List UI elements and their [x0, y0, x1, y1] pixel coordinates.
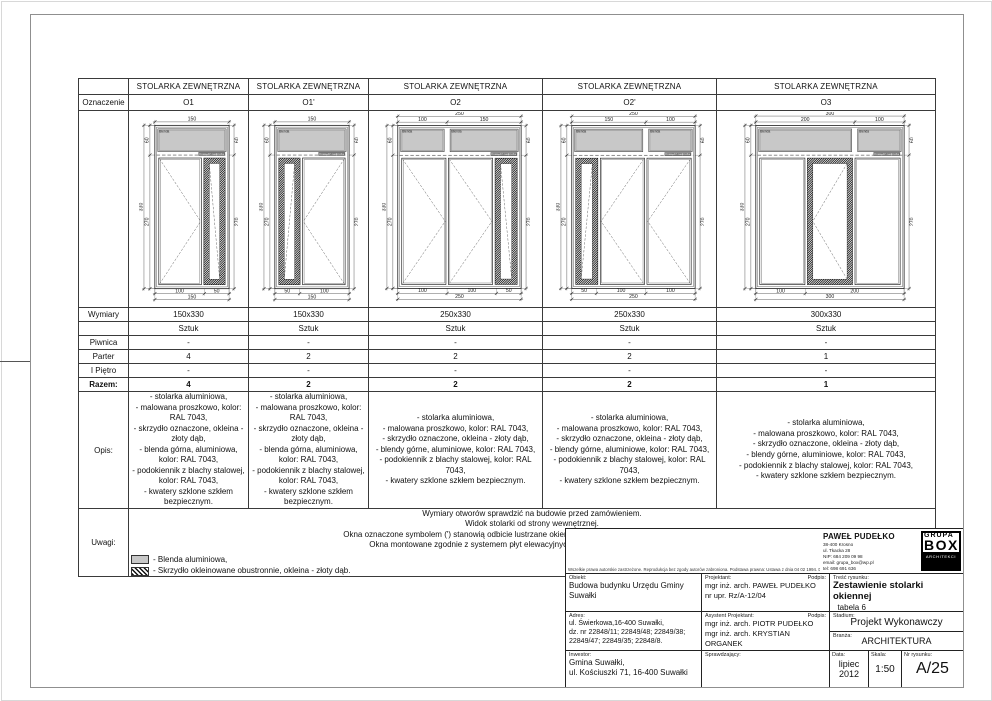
svg-text:Blenda: Blenda [576, 129, 586, 133]
svg-text:Krawędź nadproża: Krawędź nadproża [491, 152, 516, 156]
column-header: STOLARKA ZEWNĘTRZNA [249, 79, 369, 95]
asystent-cell: Asystent Projektant: Podpis: mgr inż. ar… [701, 611, 829, 650]
svg-text:300: 300 [825, 112, 834, 117]
row-label-razem: Razem: [79, 378, 129, 392]
firm-address: 38-400 Krosno ul. Tkacka 28 NIP: 684 209… [823, 542, 919, 572]
pietro-value: - [717, 364, 936, 378]
svg-text:270: 270 [387, 217, 393, 226]
svg-text:60: 60 [700, 137, 703, 143]
sztuk-row-label [79, 322, 129, 336]
svg-text:270: 270 [355, 217, 358, 226]
asystent-value: mgr inż. arch. PIOTR PUDEŁKO mgr inż. ar… [705, 619, 826, 648]
projektant-value: mgr inż. arch. PAWEŁ PUDEŁKO nr upr. Rz/… [705, 581, 826, 601]
svg-text:50: 50 [581, 288, 587, 294]
veneer-swatch-icon [131, 567, 149, 576]
mark-O1-prim: O1' [249, 95, 369, 111]
wymiary-value: 250x330 [543, 308, 717, 322]
svg-text:60: 60 [909, 137, 912, 143]
row-label-parter: Parter [79, 350, 129, 364]
svg-text:50: 50 [505, 288, 511, 294]
parter-row: Parter 4 2 2 2 1 [79, 350, 936, 364]
nr-rysunku-cell: Nr rysunku: A/25 [901, 651, 963, 687]
blenda-swatch-icon [131, 555, 149, 564]
window-drawing-O2: 250100150100100502503306027060270BlendaB… [369, 111, 543, 308]
logo-text: GRUPA BOX [923, 533, 959, 552]
row-label-piwnica: Piwnica [79, 336, 129, 350]
mark-O2-prim: O2' [543, 95, 717, 111]
svg-text:270: 270 [745, 217, 751, 226]
razem-value: 2 [249, 378, 369, 392]
window-elevation: 250150100501001002503306027060270BlendaB… [545, 112, 714, 307]
row-label-opis: Opis: [79, 392, 129, 509]
svg-text:250: 250 [629, 294, 638, 300]
svg-text:270: 270 [700, 217, 703, 226]
oznaczenie-row: Oznaczenie O1 O1' O2 O2' O3 [79, 95, 936, 111]
grupa-box-logo: GRUPA BOX ARCHITEKCI [921, 531, 961, 571]
svg-text:60: 60 [387, 137, 393, 143]
sztuk-header: Sztuk [543, 322, 717, 336]
razem-row: Razem: 4 2 2 2 1 [79, 378, 936, 392]
razem-value: 4 [129, 378, 249, 392]
svg-text:60: 60 [561, 137, 567, 143]
column-header: STOLARKA ZEWNĘTRZNA [369, 79, 543, 95]
opis-value: - stolarka aluminiowa, - malowana proszk… [717, 392, 936, 509]
svg-text:250: 250 [455, 294, 464, 300]
window-drawing-O3: 3002001001002003003306027060270BlendaBle… [717, 111, 936, 308]
window-elevation: 150501001503306027060270BlendaKrawędź na… [251, 112, 366, 307]
title-block-header: Wszelkie prawa autorskie zastrzeżone. Re… [566, 529, 963, 574]
inwestor-cell: Inwestor: Gmina Suwałki, ul. Kościuszki … [566, 650, 701, 687]
sztuk-header: Sztuk [369, 322, 543, 336]
svg-text:100: 100 [467, 288, 476, 294]
razem-value: 2 [543, 378, 717, 392]
row-label-pietro: I Piętro [79, 364, 129, 378]
pietro-value: - [129, 364, 249, 378]
drawing-row-label [79, 111, 129, 308]
svg-text:Krawędź nadproża: Krawędź nadproża [874, 152, 899, 156]
podpis-label: Podpis: [808, 575, 826, 581]
svg-text:50: 50 [214, 288, 220, 294]
drawing-title: Zestawienie stolarki okiennej [833, 581, 960, 603]
svg-text:270: 270 [264, 217, 270, 226]
window-schedule-table: STOLARKA ZEWNĘTRZNA STOLARKA ZEWNĘTRZNA … [78, 78, 936, 577]
copyright-note: Wszelkie prawa autorskie zastrzeżone. Re… [568, 567, 820, 572]
parter-value: 2 [369, 350, 543, 364]
svg-text:50: 50 [284, 288, 290, 294]
svg-text:330: 330 [382, 202, 387, 211]
razem-value: 2 [369, 378, 543, 392]
obiekt-cell: Obiekt: Budowa budynku Urzędu Gminy Suwa… [566, 574, 701, 611]
svg-text:330: 330 [139, 202, 144, 211]
svg-text:270: 270 [909, 217, 912, 226]
piwnica-value: - [717, 336, 936, 350]
legend-label: - Skrzydło okleinowane obustronnie, okle… [153, 566, 350, 576]
razem-value: 1 [717, 378, 936, 392]
svg-text:150: 150 [308, 294, 317, 300]
svg-text:Krawędź nadproża: Krawędź nadproża [665, 152, 690, 156]
svg-text:250: 250 [455, 112, 464, 117]
pietro-row: I Piętro - - - - - [79, 364, 936, 378]
svg-text:Blenda: Blenda [650, 129, 660, 133]
svg-text:100: 100 [418, 288, 427, 294]
svg-text:60: 60 [264, 137, 270, 143]
wymiary-value: 150x330 [249, 308, 369, 322]
opis-row: Opis: - stolarka aluminiowa, - malowana … [79, 392, 936, 509]
projektant-cell: Projektant: Podpis: mgr inż. arch. PAWEŁ… [701, 574, 829, 611]
svg-text:330: 330 [556, 202, 561, 211]
drawing-sheet: STOLARKA ZEWNĘTRZNA STOLARKA ZEWNĘTRZNA … [30, 14, 964, 688]
svg-text:270: 270 [235, 217, 238, 226]
nr-rysunku-label: Nr rysunku: [904, 652, 932, 658]
svg-text:Krawędź nadproża: Krawędź nadproża [319, 152, 344, 156]
svg-text:Blenda: Blenda [159, 129, 169, 133]
firm-name: PAWEŁ PUDEŁKO [823, 532, 919, 541]
svg-text:150: 150 [479, 116, 488, 122]
sztuk-header: Sztuk [717, 322, 936, 336]
svg-text:300: 300 [825, 294, 834, 300]
svg-text:150: 150 [188, 116, 197, 122]
tresc-cell: Treść rysunku: Zestawienie stolarki okie… [829, 574, 963, 611]
column-header: STOLARKA ZEWNĘTRZNA [129, 79, 249, 95]
svg-text:100: 100 [616, 288, 625, 294]
svg-text:60: 60 [745, 137, 751, 143]
svg-text:100: 100 [666, 116, 675, 122]
wymiary-value: 250x330 [369, 308, 543, 322]
svg-text:330: 330 [740, 202, 745, 211]
logo-line2: BOX [924, 540, 958, 552]
row-label-oznaczenie: Oznaczenie [79, 95, 129, 111]
svg-text:150: 150 [604, 116, 613, 122]
skala-label: Skala: [871, 652, 886, 658]
window-elevation: 150100501503306027060270BlendaKrawędź na… [131, 112, 246, 307]
pietro-value: - [249, 364, 369, 378]
data-skala-nr-cell: Data: lipiec 2012 Skala: 1:50 Nr rysunku… [829, 650, 963, 687]
opis-value: - stolarka aluminiowa, - malowana proszk… [129, 392, 249, 509]
piwnica-value: - [543, 336, 717, 350]
parter-value: 1 [717, 350, 936, 364]
firm-info: PAWEŁ PUDEŁKO 38-400 Krosno ul. Tkacka 2… [823, 532, 919, 572]
drawing-row: 150100501503306027060270BlendaKrawędź na… [79, 111, 936, 308]
svg-text:60: 60 [526, 137, 529, 143]
svg-text:100: 100 [175, 288, 184, 294]
podpis-label: Podpis: [808, 613, 826, 619]
svg-text:100: 100 [666, 288, 675, 294]
svg-text:Blenda: Blenda [760, 129, 770, 133]
window-elevation: 3002001001002003003306027060270BlendaBle… [719, 112, 933, 307]
wymiary-value: 150x330 [129, 308, 249, 322]
svg-text:200: 200 [850, 288, 859, 294]
parter-value: 4 [129, 350, 249, 364]
opis-value: - stolarka aluminiowa, - malowana proszk… [543, 392, 717, 509]
svg-text:250: 250 [629, 112, 638, 117]
stadium-branza-cell: Stadium: Projekt Wykonawczy Branża: ARCH… [829, 611, 963, 650]
window-drawing-O1-prim: 150501001503306027060270BlendaKrawędź na… [249, 111, 369, 308]
corner-cell [79, 79, 129, 95]
sztuk-header: Sztuk [249, 322, 369, 336]
pietro-value: - [543, 364, 717, 378]
svg-text:100: 100 [418, 116, 427, 122]
svg-text:100: 100 [776, 288, 785, 294]
opis-value: - stolarka aluminiowa, - malowana proszk… [369, 392, 543, 509]
window-drawing-O1: 150100501503306027060270BlendaKrawędź na… [129, 111, 249, 308]
row-label-wymiary: Wymiary [79, 308, 129, 322]
svg-text:100: 100 [320, 288, 329, 294]
wymiary-row: Wymiary 150x330 150x330 250x330 250x330 … [79, 308, 936, 322]
opis-value: - stolarka aluminiowa, - malowana proszk… [249, 392, 369, 509]
svg-text:Blenda: Blenda [402, 129, 412, 133]
parter-value: 2 [249, 350, 369, 364]
mark-O1: O1 [129, 95, 249, 111]
drawing-subtitle: _tabela 6 [833, 603, 960, 611]
adres-value: ul. Świerkowa,16-400 Suwałki, dz. nr 228… [569, 619, 698, 646]
svg-text:150: 150 [308, 116, 317, 122]
fold-mark [0, 361, 30, 362]
skala-cell: Skala: 1:50 [868, 651, 901, 687]
sztuk-row: Sztuk Sztuk Sztuk Sztuk Sztuk [79, 322, 936, 336]
mark-O2: O2 [369, 95, 543, 111]
header-row: STOLARKA ZEWNĘTRZNA STOLARKA ZEWNĘTRZNA … [79, 79, 936, 95]
piwnica-value: - [369, 336, 543, 350]
svg-text:60: 60 [355, 137, 358, 143]
logo-line3: ARCHITEKCI [921, 554, 961, 559]
sztuk-header: Sztuk [129, 322, 249, 336]
inwestor-value: Gmina Suwałki, ul. Kościuszki 71, 16-400… [569, 658, 698, 679]
adres-cell: Adres: ul. Świerkowa,16-400 Suwałki, dz.… [566, 611, 701, 650]
title-block-grid: Obiekt: Budowa budynku Urzędu Gminy Suwa… [566, 574, 963, 687]
svg-text:Blenda: Blenda [451, 129, 461, 133]
svg-text:Krawędź nadproża: Krawędź nadproża [199, 152, 224, 156]
window-elevation: 250100150100100502503306027060270BlendaB… [371, 112, 540, 307]
svg-text:Blenda: Blenda [859, 129, 869, 133]
obiekt-value: Budowa budynku Urzędu Gminy Suwałki [569, 581, 698, 602]
svg-text:270: 270 [561, 217, 567, 226]
column-header: STOLARKA ZEWNĘTRZNA [543, 79, 717, 95]
piwnica-value: - [249, 336, 369, 350]
wymiary-value: 300x330 [717, 308, 936, 322]
svg-text:60: 60 [235, 137, 238, 143]
window-drawing-O2-prim: 250150100501001002503306027060270BlendaB… [543, 111, 717, 308]
title-block: Wszelkie prawa autorskie zastrzeżone. Re… [565, 528, 963, 687]
svg-text:60: 60 [144, 137, 150, 143]
piwnica-value: - [129, 336, 249, 350]
svg-text:270: 270 [144, 217, 150, 226]
svg-text:Blenda: Blenda [279, 129, 289, 133]
row-label-uwagi: Uwagi: [79, 509, 129, 577]
stadium-label: Stadium: [833, 613, 855, 619]
svg-text:150: 150 [188, 294, 197, 300]
stadium-cell: Stadium: Projekt Wykonawczy [830, 612, 963, 631]
svg-text:200: 200 [800, 116, 809, 122]
column-header: STOLARKA ZEWNĘTRZNA [717, 79, 936, 95]
legend-label: - Blenda aluminiowa, [153, 555, 227, 565]
parter-value: 2 [543, 350, 717, 364]
data-label: Data: [832, 652, 845, 658]
svg-text:100: 100 [875, 116, 884, 122]
mark-O3: O3 [717, 95, 936, 111]
svg-text:330: 330 [259, 202, 264, 211]
branza-label: Branża: [833, 633, 852, 639]
piwnica-row: Piwnica - - - - - [79, 336, 936, 350]
svg-text:270: 270 [526, 217, 529, 226]
sprawdzajacy-cell: Sprawdzający: [701, 650, 829, 687]
data-cell: Data: lipiec 2012 [830, 651, 868, 687]
sprawdzajacy-label: Sprawdzający: [705, 652, 826, 658]
pietro-value: - [369, 364, 543, 378]
branza-cell: Branża: ARCHITEKTURA [830, 631, 963, 651]
